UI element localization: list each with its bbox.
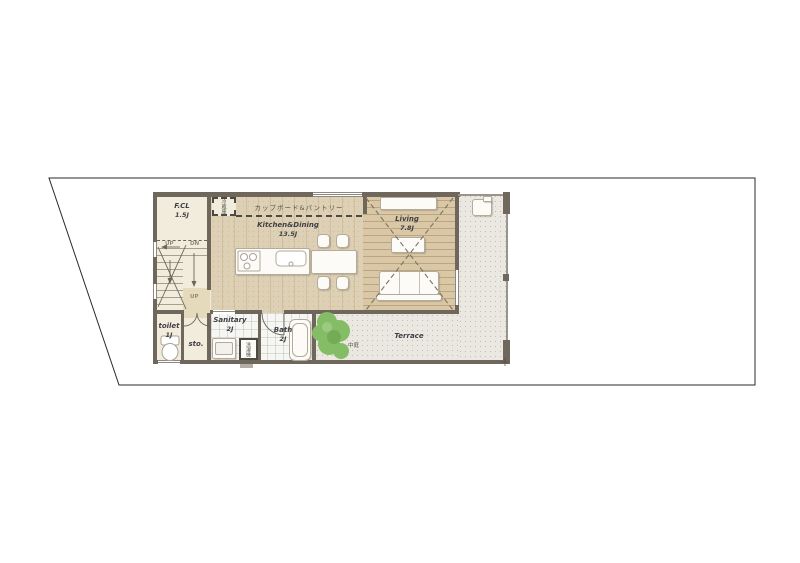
room-label-bath: Bath 2J: [274, 326, 292, 343]
bathtub-inner: [292, 323, 308, 357]
cupboard-dashed-line: [236, 215, 362, 217]
wall-segment: [503, 192, 510, 214]
room-size: 7.8J: [395, 224, 419, 232]
room-name: F.CL: [174, 202, 190, 211]
living-table: [391, 237, 425, 253]
refrigerator-icon: 冷蔵庫: [212, 197, 236, 216]
sliding-door: [213, 310, 235, 314]
terrace-edge: [458, 194, 504, 196]
washing-machine-icon: 洗濯機: [239, 338, 258, 360]
dining-chair: [317, 276, 330, 290]
room-name: sto.: [189, 340, 204, 349]
room-label-toilet: toilet 1J: [158, 322, 179, 339]
wall-segment: [284, 310, 458, 314]
room-name: Terrace: [394, 332, 423, 341]
room-name: Kitchen&Dining: [257, 221, 319, 230]
sofa-back: [376, 294, 442, 301]
exterior-step: [240, 364, 253, 368]
room-label-kitchen-dining: Kitchen&Dining 13.5J: [257, 221, 319, 238]
floor-terrace-side: [458, 194, 507, 364]
room-size: 2J: [213, 325, 246, 333]
window: [153, 242, 157, 257]
courtyard-label: 中庭: [348, 341, 359, 349]
floorplan-canvas: 冷蔵庫 洗濯機: [0, 0, 800, 563]
window: [153, 284, 157, 299]
room-size: 2J: [274, 335, 292, 343]
wall-segment: [455, 196, 459, 270]
water-heater-tab: [483, 196, 492, 202]
floor-hall-up: [183, 288, 210, 318]
dining-chair: [336, 234, 349, 248]
room-size: 1.5J: [174, 211, 190, 219]
room-label-fcl: F.CL 1.5J: [174, 202, 190, 219]
wall-segment: [153, 257, 157, 284]
window: [313, 192, 362, 197]
room-label-living: Living 7.8J: [395, 215, 419, 232]
wall-segment: [207, 192, 211, 290]
wall-segment: [363, 196, 367, 214]
fence-post: [503, 274, 509, 281]
refrigerator-label: 冷蔵庫: [221, 199, 228, 214]
glass-door: [455, 270, 459, 305]
window: [158, 360, 180, 364]
stairs-dn-label: DN: [190, 241, 199, 247]
floor-terrace-bottom: [315, 313, 458, 364]
dining-chair: [317, 234, 330, 248]
cupboard-pantry-label: カップボード&パントリー: [255, 202, 344, 212]
room-name: toilet: [158, 322, 179, 331]
wall-segment: [503, 340, 510, 364]
room-label-terrace: Terrace: [394, 332, 423, 341]
wall-segment: [180, 360, 510, 364]
vanity-basin: [215, 342, 233, 355]
sofa-seat: [379, 271, 439, 295]
room-size: 13.5J: [257, 230, 319, 238]
floor-stairs: [157, 242, 183, 312]
room-name: Living: [395, 215, 419, 224]
wall-segment: [153, 192, 157, 242]
wall-segment: [153, 299, 157, 364]
room-label-sanitary: Sanitary 2J: [213, 316, 246, 333]
wall-segment: [181, 313, 184, 364]
stairs-up-label: UP: [165, 241, 174, 247]
room-name: Sanitary: [213, 316, 246, 325]
room-label-storage: sto.: [189, 340, 204, 349]
wall-segment: [207, 313, 211, 364]
tv-board: [380, 197, 437, 210]
hall-up-label: UP: [190, 294, 199, 300]
kitchen-island: [235, 248, 310, 275]
dining-chair: [336, 276, 349, 290]
wall-segment: [153, 310, 184, 314]
washing-machine-label: 洗濯機: [245, 342, 252, 357]
room-name: Bath: [274, 326, 292, 335]
wall-segment: [258, 313, 261, 364]
dining-table: [311, 250, 357, 274]
room-size: 1J: [158, 331, 179, 339]
wall-segment: [312, 313, 316, 364]
